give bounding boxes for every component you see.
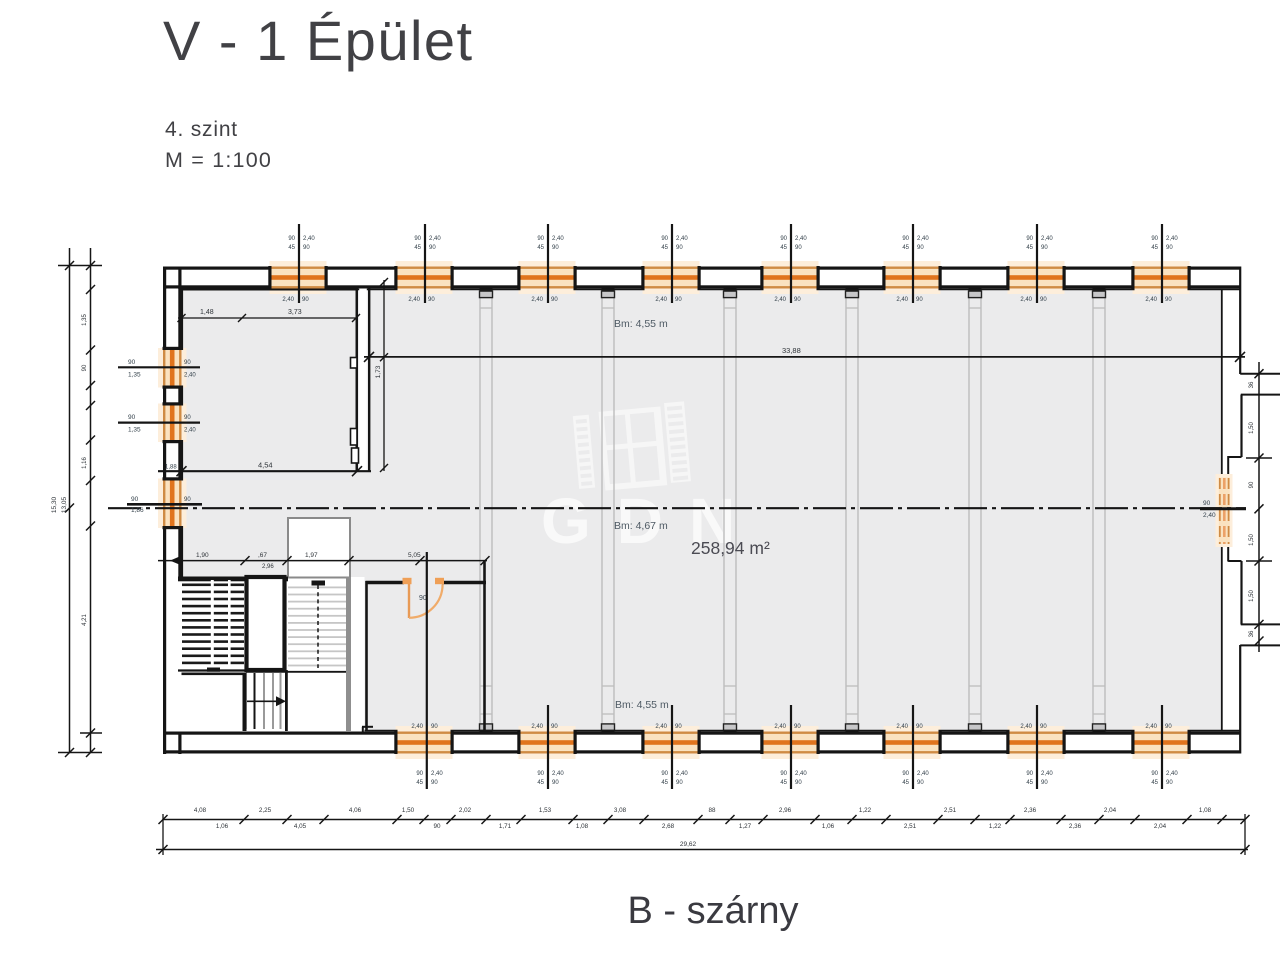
svg-text:1,27: 1,27: [739, 823, 752, 830]
svg-text:V - 1 Épület: V - 1 Épület: [163, 9, 474, 72]
svg-text:2,40: 2,40: [1145, 297, 1157, 303]
svg-text:33,88: 33,88: [782, 346, 801, 355]
svg-text:90: 90: [794, 724, 801, 730]
svg-text:45: 45: [414, 245, 421, 251]
svg-text:90: 90: [902, 771, 909, 777]
svg-text:90: 90: [1026, 771, 1033, 777]
svg-text:3,73: 3,73: [288, 309, 302, 316]
svg-text:90: 90: [433, 823, 441, 830]
svg-text:90: 90: [675, 724, 682, 730]
svg-text:90: 90: [676, 780, 683, 786]
svg-text:90: 90: [676, 245, 683, 251]
svg-text:45: 45: [537, 245, 544, 251]
svg-text:45: 45: [661, 780, 668, 786]
svg-text:2,40: 2,40: [184, 372, 196, 378]
svg-text:Bm: 4,55 m: Bm: 4,55 m: [615, 699, 669, 711]
svg-text:90: 90: [431, 780, 438, 786]
svg-text:2,40: 2,40: [184, 428, 196, 434]
svg-text:90: 90: [902, 236, 909, 242]
svg-text:1,06: 1,06: [216, 823, 229, 830]
svg-text:1,22: 1,22: [989, 823, 1002, 830]
svg-text:3,08: 3,08: [614, 807, 627, 814]
svg-text:90: 90: [1040, 297, 1047, 303]
svg-text:90: 90: [416, 771, 423, 777]
svg-text:2,40: 2,40: [917, 236, 929, 242]
svg-text:45: 45: [1151, 245, 1158, 251]
svg-text:2,40: 2,40: [1203, 512, 1216, 519]
svg-text:4,54: 4,54: [258, 461, 273, 470]
svg-text:13,05: 13,05: [61, 496, 68, 513]
svg-text:2,40: 2,40: [1020, 297, 1032, 303]
svg-text:90: 90: [780, 236, 787, 242]
svg-text:4,05: 4,05: [294, 823, 307, 830]
svg-text:1,88: 1,88: [165, 465, 177, 471]
svg-text:90: 90: [795, 245, 802, 251]
svg-text:2,51: 2,51: [904, 823, 917, 830]
svg-text:1,73: 1,73: [375, 365, 382, 378]
svg-text:2,40: 2,40: [676, 236, 688, 242]
svg-text:45: 45: [780, 780, 787, 786]
svg-text:4,21: 4,21: [82, 614, 88, 626]
svg-text:4. szint: 4. szint: [165, 118, 238, 141]
svg-text:90: 90: [1041, 780, 1048, 786]
svg-text:90: 90: [537, 771, 544, 777]
svg-text:29,62: 29,62: [680, 841, 697, 848]
svg-text:36: 36: [1249, 381, 1255, 388]
svg-text:2,40: 2,40: [431, 771, 443, 777]
svg-text:90: 90: [661, 236, 668, 242]
svg-text:1,50: 1,50: [1249, 534, 1255, 546]
svg-text:1,08: 1,08: [576, 823, 589, 830]
svg-text:90: 90: [128, 359, 136, 366]
svg-text:2,68: 2,68: [662, 823, 675, 830]
svg-text:1,35: 1,35: [128, 427, 141, 434]
svg-text:M = 1:100: M = 1:100: [165, 148, 272, 172]
svg-text:2,40: 2,40: [655, 297, 667, 303]
svg-text:90: 90: [1165, 297, 1172, 303]
svg-text:90: 90: [131, 496, 139, 503]
svg-text:2,96: 2,96: [262, 564, 274, 570]
svg-text:258,94 m²: 258,94 m²: [691, 538, 770, 558]
svg-text:1,97: 1,97: [305, 552, 318, 559]
svg-text:88: 88: [708, 807, 716, 814]
svg-text:45: 45: [902, 245, 909, 251]
svg-text:2,25: 2,25: [259, 807, 272, 814]
svg-text:2,04: 2,04: [1104, 807, 1117, 814]
svg-text:Bm: 4,55 m: Bm: 4,55 m: [614, 318, 668, 330]
svg-text:2,40: 2,40: [552, 236, 564, 242]
svg-text:45: 45: [1151, 780, 1158, 786]
svg-text:1,50: 1,50: [402, 807, 415, 814]
svg-text:90: 90: [551, 297, 558, 303]
svg-text:2,40: 2,40: [655, 724, 667, 730]
svg-text:45: 45: [416, 780, 423, 786]
svg-text:1,22: 1,22: [859, 807, 872, 814]
svg-text:2,40: 2,40: [896, 297, 908, 303]
svg-text:2,40: 2,40: [795, 771, 807, 777]
svg-text:1,90: 1,90: [196, 552, 209, 559]
svg-text:90: 90: [794, 297, 801, 303]
svg-text:1,16: 1,16: [82, 457, 88, 469]
svg-text:1,08: 1,08: [1199, 807, 1212, 814]
svg-text:90: 90: [1026, 236, 1033, 242]
svg-text:90: 90: [1203, 500, 1211, 507]
svg-text:2,96: 2,96: [779, 807, 792, 814]
svg-text:45: 45: [1026, 780, 1033, 786]
svg-text:90: 90: [916, 724, 923, 730]
svg-text:B - szárny: B - szárny: [627, 890, 798, 932]
svg-text:2,40: 2,40: [795, 236, 807, 242]
svg-text:45: 45: [780, 245, 787, 251]
svg-text:45: 45: [288, 245, 295, 251]
svg-text:2,40: 2,40: [531, 724, 543, 730]
svg-text:2,40: 2,40: [774, 297, 786, 303]
svg-text:90: 90: [917, 780, 924, 786]
svg-text:2,40: 2,40: [411, 724, 423, 730]
svg-text:1,06: 1,06: [822, 823, 835, 830]
svg-text:2,40: 2,40: [896, 724, 908, 730]
svg-text:90: 90: [431, 724, 438, 730]
svg-text:2,40: 2,40: [408, 297, 420, 303]
svg-text:90: 90: [661, 771, 668, 777]
svg-text:90: 90: [184, 497, 191, 503]
svg-text:2,36: 2,36: [1024, 807, 1037, 814]
svg-text:90: 90: [1040, 724, 1047, 730]
svg-text:90: 90: [916, 297, 923, 303]
svg-text:90: 90: [1165, 724, 1172, 730]
svg-text:2,40: 2,40: [552, 771, 564, 777]
svg-text:2,40: 2,40: [531, 297, 543, 303]
svg-text:90: 90: [1151, 771, 1158, 777]
svg-text:90: 90: [414, 236, 421, 242]
svg-text:90: 90: [795, 780, 802, 786]
svg-text:45: 45: [537, 780, 544, 786]
svg-text:90: 90: [780, 771, 787, 777]
svg-text:1,50: 1,50: [1249, 590, 1255, 602]
svg-text:45: 45: [1026, 245, 1033, 251]
svg-text:5,05: 5,05: [408, 552, 421, 559]
svg-text:90: 90: [428, 297, 435, 303]
svg-text:1,86: 1,86: [131, 507, 144, 514]
svg-text:1,50: 1,50: [1249, 422, 1255, 434]
svg-text:2,40: 2,40: [429, 236, 441, 242]
svg-text:90: 90: [675, 297, 682, 303]
svg-text:2,40: 2,40: [676, 771, 688, 777]
svg-text:2,40: 2,40: [917, 771, 929, 777]
svg-text:2,40: 2,40: [282, 297, 294, 303]
svg-text:1,35: 1,35: [82, 314, 88, 326]
svg-text:15,30: 15,30: [51, 496, 58, 513]
svg-text:45: 45: [661, 245, 668, 251]
svg-text:36: 36: [1249, 630, 1255, 637]
svg-text:90: 90: [82, 364, 88, 371]
svg-text:1,53: 1,53: [539, 807, 552, 814]
svg-text:90: 90: [1249, 481, 1255, 488]
svg-text:2,40: 2,40: [774, 724, 786, 730]
svg-text:2,40: 2,40: [1166, 236, 1178, 242]
svg-text:90: 90: [302, 297, 309, 303]
svg-text:2,51: 2,51: [944, 807, 957, 814]
svg-text:90: 90: [552, 780, 559, 786]
svg-text:90: 90: [1166, 780, 1173, 786]
svg-text:1,71: 1,71: [499, 823, 512, 830]
svg-text:90: 90: [303, 245, 310, 251]
svg-text:90: 90: [537, 236, 544, 242]
svg-text:90: 90: [1151, 236, 1158, 242]
svg-text:90: 90: [1166, 245, 1173, 251]
svg-text:2,40: 2,40: [1041, 771, 1053, 777]
svg-text:90: 90: [128, 414, 136, 421]
svg-text:2,02: 2,02: [459, 807, 472, 814]
svg-text:45: 45: [902, 780, 909, 786]
svg-text:1,48: 1,48: [200, 309, 214, 316]
svg-text:4,06: 4,06: [349, 807, 362, 814]
svg-text:2,04: 2,04: [1154, 823, 1167, 830]
svg-text:90: 90: [551, 724, 558, 730]
svg-text:90: 90: [552, 245, 559, 251]
svg-text:90: 90: [184, 415, 191, 421]
svg-text:2,36: 2,36: [1069, 823, 1082, 830]
svg-text:90: 90: [917, 245, 924, 251]
svg-text:90: 90: [184, 360, 191, 366]
svg-text:2,40: 2,40: [1166, 771, 1178, 777]
svg-text:90: 90: [1041, 245, 1048, 251]
svg-text:1,35: 1,35: [128, 371, 141, 378]
svg-text:4,08: 4,08: [194, 807, 207, 814]
svg-text:Bm: 4,67 m: Bm: 4,67 m: [614, 520, 668, 532]
svg-text:,67: ,67: [258, 552, 267, 559]
svg-text:2,40: 2,40: [303, 236, 315, 242]
svg-text:90: 90: [429, 245, 436, 251]
svg-text:2,40: 2,40: [1020, 724, 1032, 730]
svg-text:2,40: 2,40: [1145, 724, 1157, 730]
svg-text:2,40: 2,40: [1041, 236, 1053, 242]
svg-text:90: 90: [288, 236, 295, 242]
